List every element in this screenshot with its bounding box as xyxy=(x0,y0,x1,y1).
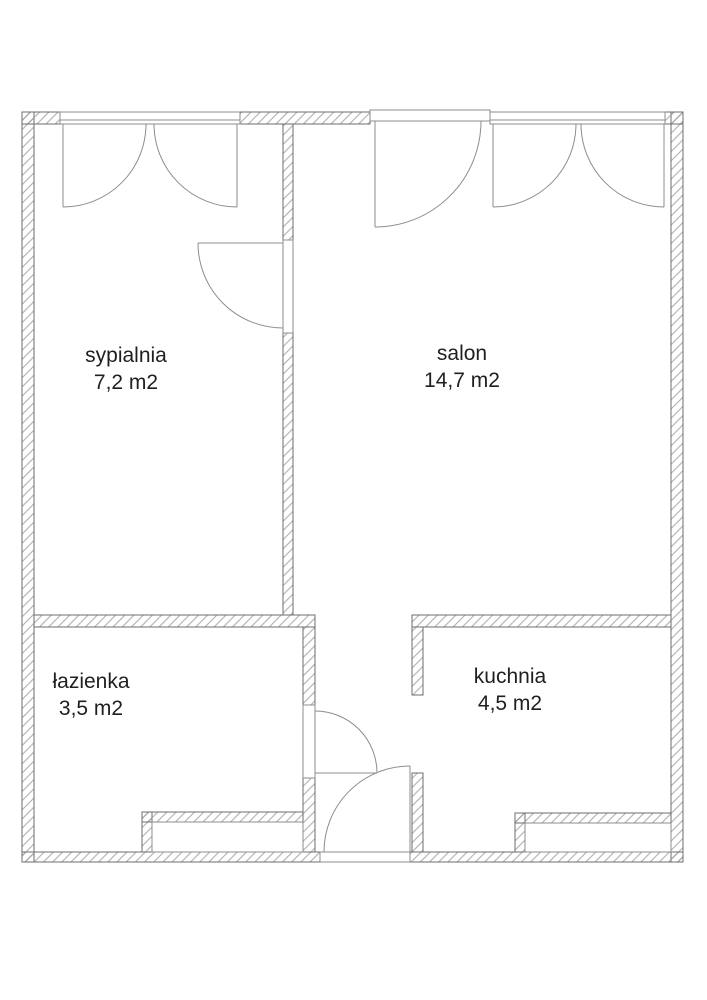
balcony-door-swing-arc xyxy=(375,121,481,227)
bedroom-window xyxy=(60,112,240,124)
room-area: 14,7 m2 xyxy=(424,367,500,394)
outer-wall-bottom-left xyxy=(22,852,320,862)
entrance-threshold xyxy=(320,852,410,862)
room-label-lazienka: łazienka 3,5 m2 xyxy=(52,668,129,722)
outer-wall-left xyxy=(22,112,34,862)
floor-plan-drawing xyxy=(0,0,707,1000)
bedroom-window-right-swing-arc xyxy=(154,124,237,207)
kitchen-window xyxy=(525,823,671,852)
bedroom-window-left-swing-arc xyxy=(63,124,146,207)
wall-bedroom-salon-upper xyxy=(283,124,293,240)
outer-wall-top-right-corner xyxy=(664,112,683,124)
room-label-salon: salon 14,7 m2 xyxy=(424,340,500,394)
entrance-door-swing-arc xyxy=(324,766,410,852)
outer-wall-top-middle xyxy=(240,112,370,124)
room-name: łazienka xyxy=(52,668,129,695)
wall-kitchen-left-upper xyxy=(412,627,423,695)
wall-bathroom-top xyxy=(34,615,315,627)
outer-wall-right xyxy=(671,112,683,862)
salon-window xyxy=(490,112,665,124)
room-area: 3,5 m2 xyxy=(52,695,129,722)
room-area: 7,2 m2 xyxy=(85,369,167,396)
wall-bathroom-right-upper xyxy=(303,627,315,705)
outer-wall-top-left-corner xyxy=(22,112,60,124)
bathroom-recess xyxy=(152,822,303,852)
wall-bedroom-salon-lower xyxy=(283,333,293,615)
room-label-kuchnia: kuchnia 4,5 m2 xyxy=(474,663,546,717)
room-name: sypialnia xyxy=(85,342,167,369)
bathroom-recess-wall-top xyxy=(142,812,303,822)
wall-kitchen-left-lower xyxy=(412,773,423,852)
room-name: salon xyxy=(424,340,500,367)
wall-bathroom-right-lower xyxy=(303,778,315,852)
wall-kitchen-top xyxy=(412,615,671,627)
outer-wall-bottom-right xyxy=(410,852,683,862)
bedroom-door-opening xyxy=(283,240,293,333)
floor-plan: sypialnia 7,2 m2 salon 14,7 m2 łazienka … xyxy=(0,0,707,1000)
salon-window-right-swing-arc xyxy=(581,124,664,207)
salon-window-left-swing-arc xyxy=(493,124,576,207)
kitchen-window-wall-top xyxy=(515,813,671,823)
bathroom-door-swing-arc xyxy=(315,711,377,773)
room-label-sypialnia: sypialnia 7,2 m2 xyxy=(85,342,167,396)
room-area: 4,5 m2 xyxy=(474,690,546,717)
bedroom-door-swing-arc xyxy=(198,243,283,328)
room-name: kuchnia xyxy=(474,663,546,690)
bathroom-door-opening xyxy=(303,705,315,778)
balcony-door xyxy=(370,110,490,121)
